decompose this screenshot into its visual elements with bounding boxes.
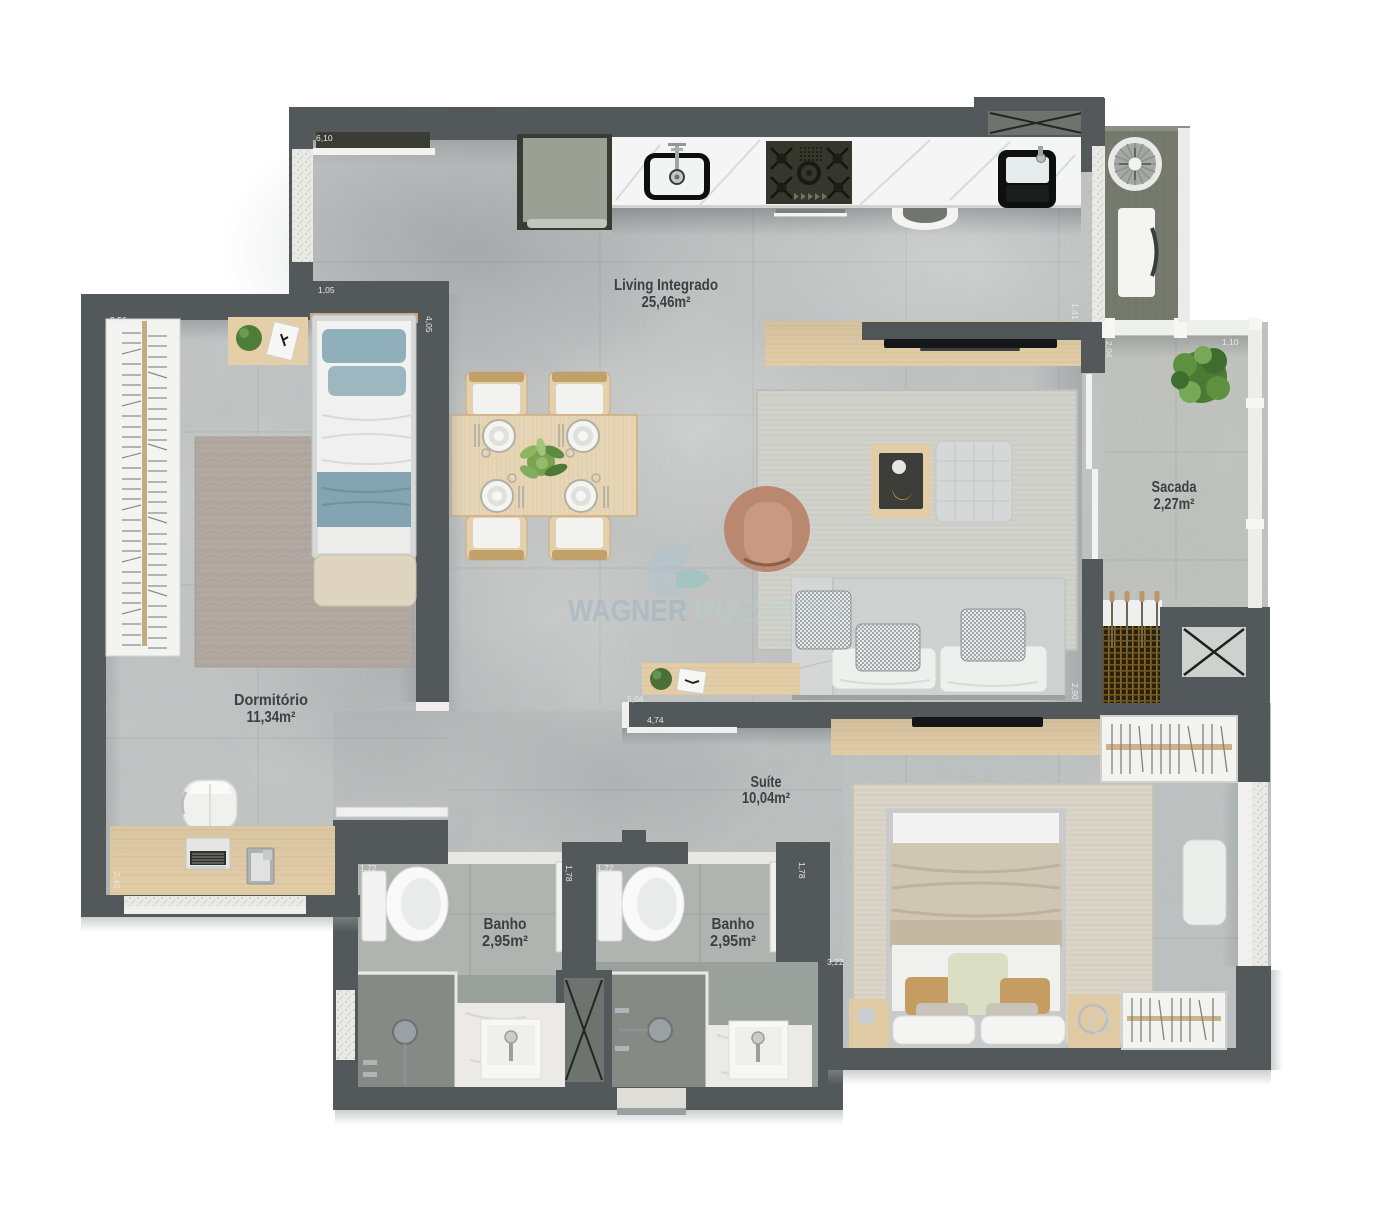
svg-text:1,05: 1,05 <box>318 285 335 295</box>
svg-text:1,78: 1,78 <box>797 862 807 879</box>
svg-text:11,34m²: 11,34m² <box>247 709 296 726</box>
svg-text:2,40: 2,40 <box>112 872 122 889</box>
svg-text:2,27m²: 2,27m² <box>1154 496 1195 513</box>
svg-text:Suíte: Suíte <box>751 774 782 791</box>
svg-text:1,78: 1,78 <box>564 865 574 882</box>
svg-text:1,10: 1,10 <box>1222 337 1239 347</box>
svg-text:Dormitório: Dormitório <box>234 692 308 709</box>
svg-text:2,56: 2,56 <box>110 315 127 325</box>
svg-text:2,90: 2,90 <box>1070 683 1080 700</box>
svg-text:2,04: 2,04 <box>1104 341 1114 358</box>
svg-text:WAGNER: WAGNER <box>568 593 687 628</box>
svg-text:25,46m²: 25,46m² <box>642 294 691 311</box>
svg-text:4,74: 4,74 <box>647 715 664 725</box>
svg-text:Banho: Banho <box>712 916 755 933</box>
svg-text:Sacada: Sacada <box>1152 479 1197 496</box>
svg-text:5,04: 5,04 <box>627 694 644 704</box>
svg-text:6,10: 6,10 <box>316 133 333 143</box>
svg-text:1,72: 1,72 <box>360 863 377 873</box>
svg-text:2,95m²: 2,95m² <box>710 933 756 950</box>
svg-text:PROJETOS EXECUTIVOS: PROJETOS EXECUTIVOS <box>700 638 804 645</box>
svg-text:1,72: 1,72 <box>597 863 614 873</box>
svg-text:PIZZATTO: PIZZATTO <box>694 593 844 628</box>
svg-text:3,22: 3,22 <box>827 957 844 967</box>
svg-text:Living Integrado: Living Integrado <box>614 277 718 294</box>
svg-text:1,41: 1,41 <box>1070 303 1080 320</box>
svg-text:Banho: Banho <box>484 916 527 933</box>
svg-text:4,05: 4,05 <box>424 316 434 333</box>
svg-text:10,04m²: 10,04m² <box>742 790 790 807</box>
svg-text:2,95m²: 2,95m² <box>482 933 528 950</box>
